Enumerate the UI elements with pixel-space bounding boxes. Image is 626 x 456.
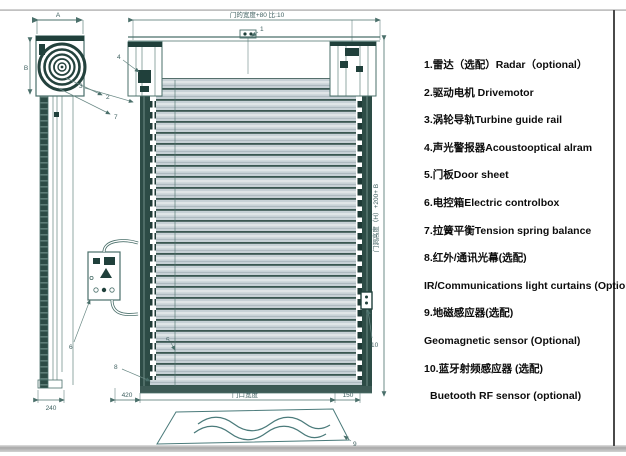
parts-list-item: 3.涡轮导轨Turbine guide rail [424, 107, 610, 135]
leader-2: 2 [106, 94, 110, 101]
dim-side-width-a: A [56, 12, 61, 19]
leader-5: 5 [166, 337, 170, 344]
parts-list-item-cont: IR/Communications light curtains (Option… [424, 273, 610, 301]
parts-list-item: 5.门板Door sheet [424, 162, 610, 190]
dim-bottom-right-150: 150 [343, 392, 354, 399]
leader-1: 1 [260, 26, 264, 33]
floor-mat-sensor-area [157, 409, 349, 444]
front-elevation [115, 20, 384, 403]
dim-side-height-b: B [24, 65, 28, 72]
parts-list: 1.雷达（选配）Radar（optional） 2.驱动电机 Drivemoto… [424, 52, 610, 411]
parts-list-item: 1.雷达（选配）Radar（optional） [424, 52, 610, 80]
rf-sensor-box [361, 292, 372, 309]
diagram-page: A B 240 [0, 0, 626, 456]
leader-10: 10 [371, 342, 379, 349]
parts-list-item: 7.拉簧平衡Tension spring balance [424, 218, 610, 246]
dim-bottom-left-420: 420 [122, 392, 133, 399]
leader-9: 9 [353, 441, 357, 448]
electric-control-box [88, 241, 138, 315]
leader-4: 4 [117, 54, 121, 61]
parts-list-item: 8.红外/通讯光幕(选配) [424, 245, 610, 273]
parts-list-item-cont: Buetooth RF sensor (optional) [424, 383, 610, 411]
dim-side-depth-240: 240 [46, 405, 57, 412]
left-guide-rail [140, 60, 150, 390]
parts-list-item: 10.蓝牙射频感应器 (选配) [424, 356, 610, 384]
dim-bottom-center-opening: 门口宽度 [232, 390, 259, 399]
parts-list-item-cont: Geomagnetic sensor (Optional) [424, 328, 610, 356]
right-corner-bracket-motor [330, 20, 376, 96]
leader-6: 6 [69, 344, 73, 351]
dim-top-width: 门的宽度+80 比:10 [230, 10, 285, 19]
parts-list-item: 6.电控箱Electric controlbox [424, 190, 610, 218]
door-curtain-slats [150, 78, 362, 386]
side-view-roller-assembly [30, 20, 85, 403]
dim-right-height: 门洞高度（H）+200+ B [371, 184, 380, 252]
leader-7: 7 [114, 114, 118, 121]
parts-list-item: 2.驱动电机 Drivemotor [424, 80, 610, 108]
parts-list-item: 9.地磁感应器(选配) [424, 300, 610, 328]
parts-list-item: 4.声光警报器Acoustooptical alram [424, 135, 610, 163]
leader-3: 3 [79, 83, 83, 90]
left-corner-bracket [128, 42, 162, 96]
leader-8: 8 [114, 364, 118, 371]
